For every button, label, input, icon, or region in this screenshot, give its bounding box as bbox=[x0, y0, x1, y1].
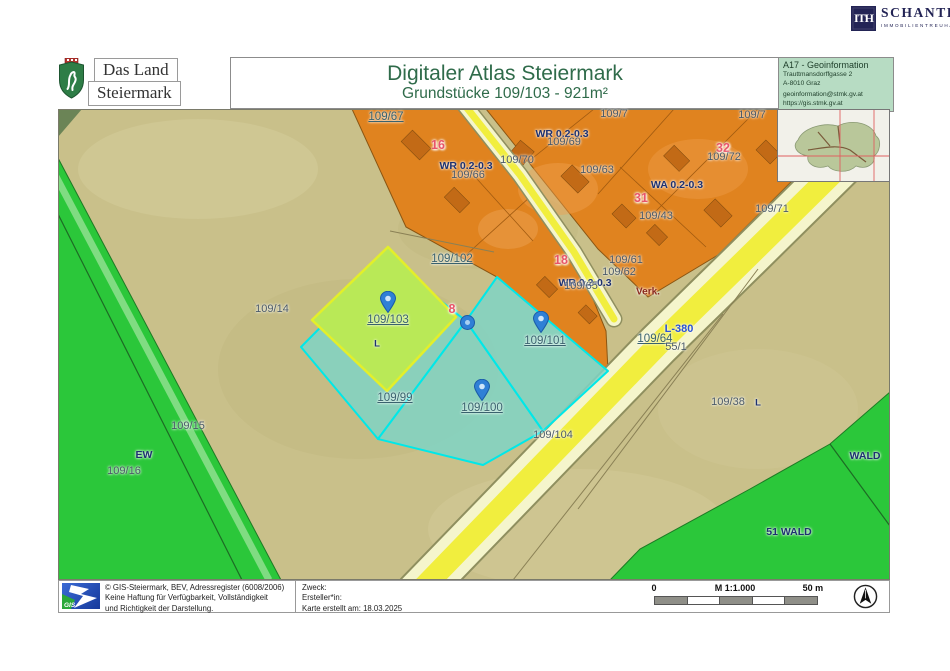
info-department: A17 - Geoinformation bbox=[783, 60, 893, 71]
scale-start-label: 0 bbox=[651, 583, 656, 593]
org-name-line2: Steiermark bbox=[88, 81, 181, 105]
land-steiermark-logo: Das Land Steiermark bbox=[58, 58, 181, 106]
org-name-line1: Das Land bbox=[94, 58, 178, 82]
schantl-tagline: IMMOBILIENTREUHAND bbox=[881, 23, 950, 28]
map-markers bbox=[58, 109, 890, 580]
scale-bar bbox=[654, 596, 818, 605]
map-pin-icon[interactable] bbox=[474, 379, 490, 401]
footer-divider bbox=[295, 581, 296, 612]
north-arrow-icon bbox=[853, 584, 878, 609]
page-title: Digitaler Atlas Steiermark bbox=[231, 62, 779, 85]
steiermark-shield-icon bbox=[58, 58, 85, 99]
copyright-line2: Keine Haftung für Verfügbarkeit, Vollstä… bbox=[105, 593, 284, 603]
map-canvas[interactable]: 109/6716WR 0.2-0.3109/66109/70WR 0.2-0.3… bbox=[58, 109, 890, 580]
styria-overview-icon bbox=[778, 110, 889, 181]
scale-ratio-label: M 1:1.000 bbox=[715, 583, 756, 593]
schantl-name: SCHANTL bbox=[881, 6, 950, 21]
meta-author: Ersteller*in: bbox=[302, 593, 402, 603]
info-street: Trauttmansdorffgasse 2 bbox=[783, 71, 893, 80]
title-box: Digitaler Atlas Steiermark Grundstücke 1… bbox=[230, 57, 780, 109]
map-export-page: { "brand": { "monogram": "ITH", "name": … bbox=[0, 0, 950, 671]
gis-steiermark-logo: GIS. bbox=[62, 583, 100, 609]
a17-info-box: A17 - Geoinformation Trauttmansdorffgass… bbox=[778, 57, 894, 112]
footer-bar: GIS. © GIS-Steiermark, BEV, Adressregist… bbox=[58, 580, 890, 613]
copyright-line1: © GIS-Steiermark, BEV, Adressregister (6… bbox=[105, 583, 284, 593]
map-meta-text: Zweck: Ersteller*in: Karte erstellt am: … bbox=[302, 583, 402, 614]
info-city: A-8010 Graz bbox=[783, 80, 893, 89]
map-pin-icon[interactable] bbox=[380, 291, 396, 313]
copyright-line3: und Richtigkeit der Darstellung. bbox=[105, 604, 284, 614]
info-email: geoinformation@stmk.gv.at bbox=[783, 91, 893, 100]
scale-end-label: 50 m bbox=[803, 583, 824, 593]
meta-created-date: Karte erstellt am: 18.03.2025 bbox=[302, 604, 402, 614]
gis-logo-text: GIS. bbox=[64, 602, 77, 609]
meta-purpose: Zweck: bbox=[302, 583, 402, 593]
schantl-logo: ITH SCHANTL IMMOBILIENTREUHAND bbox=[851, 6, 950, 31]
schantl-monogram-icon: ITH bbox=[851, 6, 876, 31]
map-pin-icon[interactable] bbox=[533, 311, 549, 333]
overview-map bbox=[777, 109, 890, 182]
copyright-text: © GIS-Steiermark, BEV, Adressregister (6… bbox=[105, 583, 284, 614]
header: Das Land Steiermark Digitaler Atlas Stei… bbox=[58, 57, 890, 109]
page-subtitle: Grundstücke 109/103 - 921m² bbox=[231, 85, 779, 104]
scale-bar-group: 0 M 1:1.000 50 m bbox=[654, 583, 816, 609]
parcel-junction-node[interactable] bbox=[460, 315, 475, 330]
info-url: https://gis.stmk.gv.at bbox=[783, 100, 893, 109]
